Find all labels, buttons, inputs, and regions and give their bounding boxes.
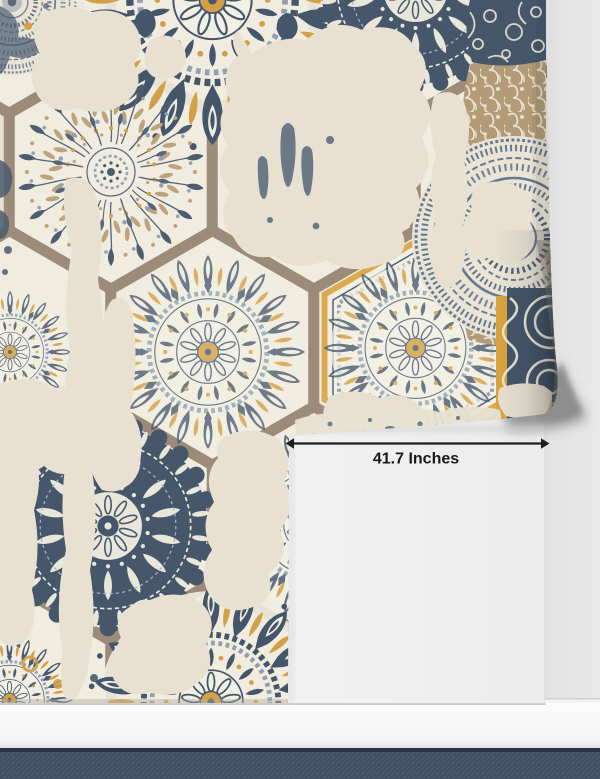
svg-text:41.7 Inches: 41.7 Inches (373, 451, 459, 468)
